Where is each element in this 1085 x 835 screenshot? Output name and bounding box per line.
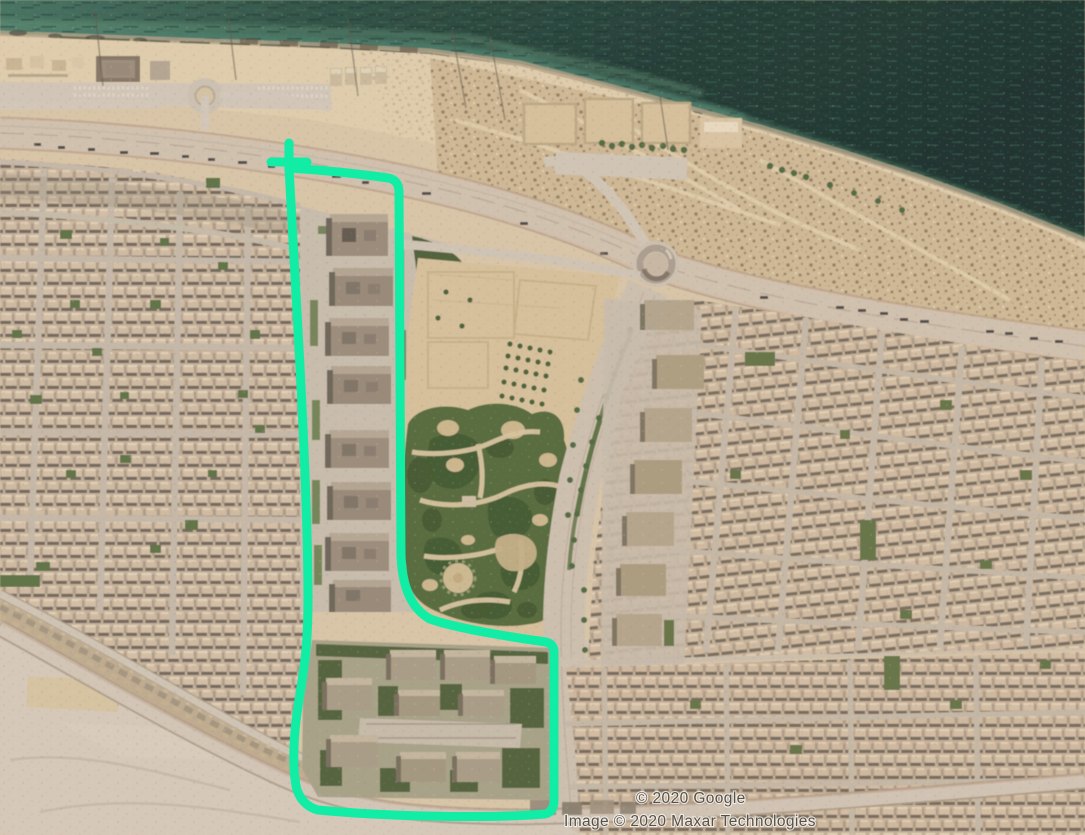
svg-text:© 2020 Google: © 2020 Google xyxy=(636,790,746,807)
svg-text:Image © 2020 Maxar Technologie: Image © 2020 Maxar Technologies xyxy=(564,813,816,830)
